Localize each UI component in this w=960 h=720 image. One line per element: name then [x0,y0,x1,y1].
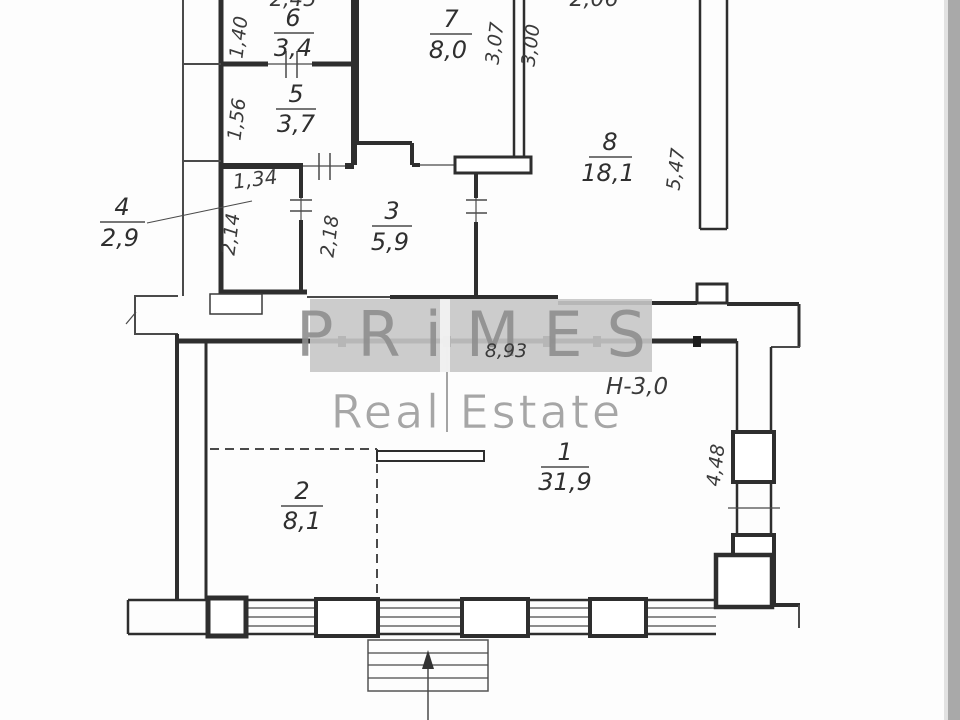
entry-notch [135,296,178,334]
dim-2-14: 2,14 [218,212,245,257]
niche-below-room4 [210,294,262,314]
partition-stub [377,451,484,461]
dim-3-07: 3,07 [482,21,509,66]
room-7-area: 8,0 [429,36,467,64]
pier-south-2 [316,599,378,636]
floor-plan-page: PRiMES Real Estate 8,93 6 3,4 5 3,7 4 2,… [0,0,960,720]
dim-5-47: 5,47 [663,147,690,192]
watermark-line2: Real Estate [331,385,623,439]
height-note: Н-3,0 [606,374,668,400]
edge-stripe-light [944,0,948,720]
window-2 [378,608,462,626]
room-5-number: 5 [288,80,303,108]
edge-stripe [948,0,960,720]
dim-1-34: 1,34 [232,164,279,193]
wall-pier-7-8 [455,157,531,173]
room-8-number: 8 [602,128,617,156]
room-5-area: 3,7 [277,110,316,138]
window-3 [528,608,590,626]
pier-east-1 [733,432,774,482]
dim-4-48: 4,48 [703,443,730,488]
pier-bump [697,284,727,303]
entrance-stairs [368,640,488,720]
room-2-area: 8,1 [283,507,321,535]
wall-room8-shaft [700,0,727,229]
room-3-number: 3 [384,197,399,225]
room-4-area: 2,9 [101,224,139,252]
window-4 [646,608,716,626]
floor-plan-drawing: PRiMES Real Estate 8,93 6 3,4 5 3,7 4 2,… [0,0,960,720]
room-4-number: 4 [114,193,129,221]
room-8-area: 18,1 [581,159,634,187]
room-labels: 6 3,4 5 3,7 4 2,9 3 5,9 7 8,0 8 18,1 1 3… [100,4,635,535]
watermark: PRiMES Real Estate [296,298,670,439]
wall-room7-south-step [356,143,420,165]
pier-south-3 [462,599,528,636]
window-1 [246,608,316,626]
dim-top-cut-right: 2,06 [570,0,619,12]
corner-block-se [716,555,772,607]
dim-1-56: 1,56 [224,97,251,142]
pier-south-4 [590,599,646,636]
dim-1-40: 1,40 [226,15,253,60]
watermark-line1: PRiMES [296,298,670,371]
room-3-area: 5,9 [371,228,409,256]
dim-3-00: 3,00 [518,23,545,68]
scan-edge [944,0,960,720]
walls-bottom-facade [128,555,800,636]
room-2-number: 2 [294,477,309,505]
junction-mark [693,336,701,347]
room-6-area: 3,4 [274,34,312,62]
dim-8-93: 8,93 [485,340,527,362]
room-1-area: 31,9 [538,468,591,496]
dim-2-18: 2,18 [317,214,344,259]
room-7-number: 7 [443,5,459,33]
walls-upper-left [183,0,354,314]
room-1-number: 1 [557,438,572,466]
pier-south-1 [208,598,246,636]
dim-top-cut-left: 2,45 [270,0,317,11]
walls-lower [177,334,780,602]
